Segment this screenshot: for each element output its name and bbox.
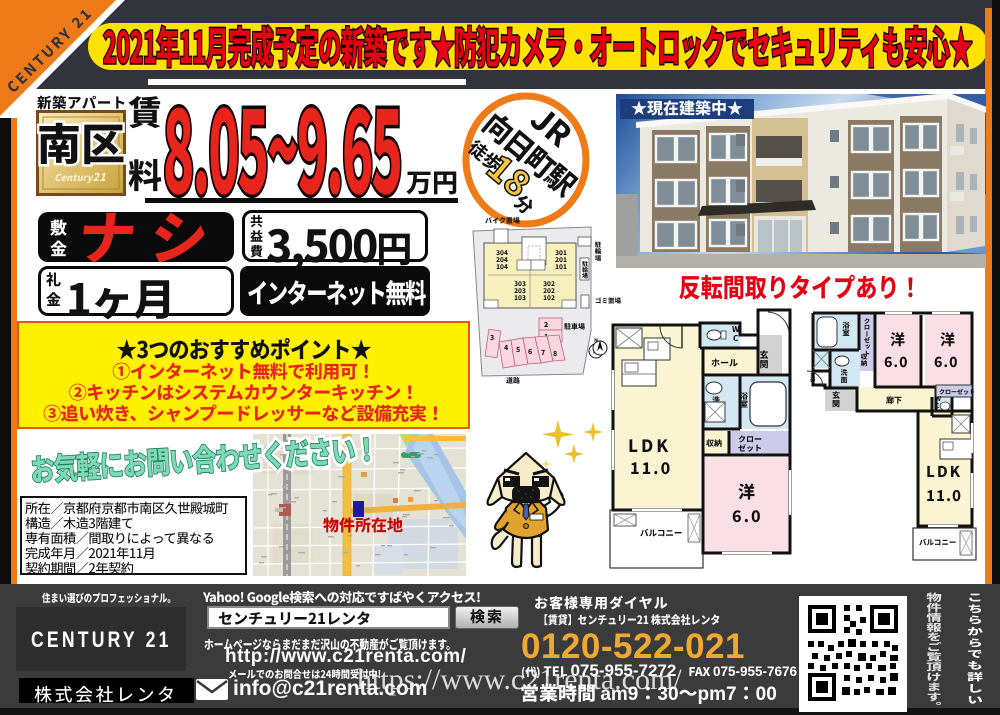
svg-text:103: 103 xyxy=(514,292,526,302)
svg-text:4: 4 xyxy=(504,343,508,353)
svg-text:洋: 洋 xyxy=(940,329,955,350)
svg-text:3: 3 xyxy=(490,333,494,343)
svg-text:C: C xyxy=(733,333,739,344)
svg-text:2021年11月完成予定の新築です★防犯カメラ・オートロック: 2021年11月完成予定の新築です★防犯カメラ・オートロックでセキュリティも安心… xyxy=(103,14,972,75)
svg-text:玄関: 玄関 xyxy=(758,350,771,369)
svg-text:洋: 洋 xyxy=(738,478,755,503)
svg-text:Century21: Century21 xyxy=(54,169,106,185)
svg-text:駐輪場: 駐輪場 xyxy=(581,260,590,279)
svg-text:収納: 収納 xyxy=(859,353,869,367)
svg-text:玄関: 玄関 xyxy=(831,391,842,408)
svg-text:お気軽にお問い合わせください！: お気軽にお問い合わせください！ xyxy=(29,430,379,486)
svg-text:2: 2 xyxy=(544,320,548,330)
svg-text:102: 102 xyxy=(543,292,555,302)
svg-text:バイク置場: バイク置場 xyxy=(485,216,520,226)
svg-text:廊下: 廊下 xyxy=(886,395,902,406)
svg-text:104: 104 xyxy=(496,261,508,271)
svg-text:6.0: 6.0 xyxy=(732,503,763,527)
svg-text:8: 8 xyxy=(553,349,557,359)
svg-text:ナシ: ナシ xyxy=(74,210,227,264)
svg-text:6: 6 xyxy=(528,347,532,357)
svg-text:収納: 収納 xyxy=(706,438,722,449)
svg-text:11.0: 11.0 xyxy=(630,455,672,479)
svg-text:クローゼット: クローゼット xyxy=(939,387,975,396)
svg-text:洋: 洋 xyxy=(890,329,905,350)
svg-text:クローゼット: クローゼット xyxy=(862,317,872,357)
svg-text:駐輪場: 駐輪場 xyxy=(593,241,603,261)
svg-text:101: 101 xyxy=(555,261,567,271)
svg-text:万円: 万円 xyxy=(406,163,458,200)
svg-text:道路: 道路 xyxy=(506,376,520,386)
svg-text:C: C xyxy=(935,400,940,410)
svg-text:11.0: 11.0 xyxy=(926,485,962,506)
svg-text:浴室: 浴室 xyxy=(739,392,750,408)
svg-text:7: 7 xyxy=(541,348,545,358)
svg-text:★現在建築中★: ★現在建築中★ xyxy=(631,95,743,119)
svg-text:バルコニー: バルコニー xyxy=(640,527,682,539)
svg-text:LDK: LDK xyxy=(926,461,962,482)
svg-text:6.0: 6.0 xyxy=(884,352,909,372)
svg-text:洗面: 洗面 xyxy=(839,369,849,384)
svg-text:南区: 南区 xyxy=(37,110,125,173)
svg-text:浴室: 浴室 xyxy=(841,321,852,337)
svg-text:ホール: ホール xyxy=(711,356,738,369)
svg-text:駐車場: 駐車場 xyxy=(564,322,585,332)
svg-text:バルコニー: バルコニー xyxy=(919,537,956,548)
svg-text:ゼット: ゼット xyxy=(738,443,762,454)
svg-text:5: 5 xyxy=(516,345,520,355)
svg-text:6.0: 6.0 xyxy=(934,352,959,372)
svg-text:物件所在地: 物件所在地 xyxy=(323,512,403,536)
svg-text:8.05~9.65: 8.05~9.65 xyxy=(163,92,401,204)
svg-text:LDK: LDK xyxy=(628,432,671,457)
